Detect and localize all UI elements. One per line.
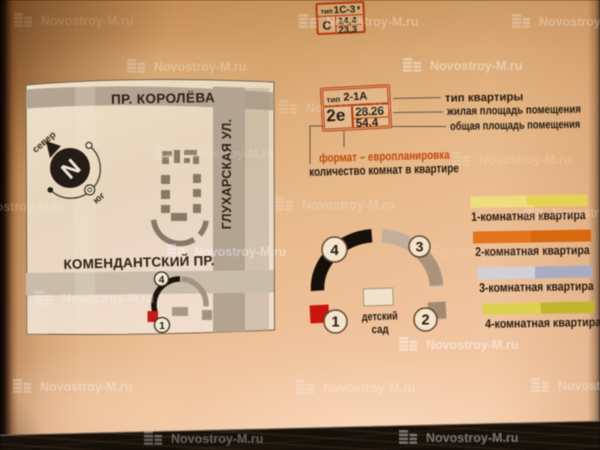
svg-text:2: 2 bbox=[421, 313, 429, 329]
svg-text:Novostroy-M.ru: Novostroy-M.ru bbox=[539, 15, 600, 29]
svg-text:Novostroy-M.ru: Novostroy-M.ru bbox=[558, 379, 600, 393]
svg-text:Novostroy-M.ru: Novostroy-M.ru bbox=[430, 59, 522, 73]
svg-text:Novostroy-M.ru: Novostroy-M.ru bbox=[302, 198, 394, 212]
svg-text:ГЛУХАРСКАЯ УЛ.: ГЛУХАРСКАЯ УЛ. bbox=[220, 119, 234, 230]
svg-text:4: 4 bbox=[330, 242, 339, 259]
svg-text:Novostroy-M.ru: Novostroy-M.ru bbox=[171, 432, 263, 446]
svg-text:Novostroy-M.ru: Novostroy-M.ru bbox=[194, 245, 286, 259]
svg-text:Novostroy-M.ru: Novostroy-M.ru bbox=[457, 246, 549, 260]
svg-text:Novostroy-M.ru: Novostroy-M.ru bbox=[323, 381, 415, 395]
svg-text:4: 4 bbox=[159, 274, 165, 286]
svg-text:1: 1 bbox=[331, 315, 339, 331]
svg-text:3: 3 bbox=[416, 239, 424, 255]
svg-text:Novostroy-M.ru: Novostroy-M.ru bbox=[306, 101, 398, 115]
svg-text:Novostroy-M.ru: Novostroy-M.ru bbox=[0, 200, 64, 214]
svg-text:сад: сад bbox=[371, 324, 389, 337]
svg-text:детский: детский bbox=[362, 310, 398, 323]
svg-text:Novostroy-M.ru: Novostroy-M.ru bbox=[41, 14, 133, 28]
svg-text:Novostroy-M.ru: Novostroy-M.ru bbox=[182, 147, 274, 161]
svg-text:1: 1 bbox=[159, 320, 165, 332]
svg-text:Novostroy-M.ru: Novostroy-M.ru bbox=[479, 153, 571, 167]
svg-text:Novostroy-M.ru: Novostroy-M.ru bbox=[426, 338, 518, 352]
svg-text:Novostroy-M.ru: Novostroy-M.ru bbox=[552, 206, 600, 220]
svg-text:Novostroy-M.ru: Novostroy-M.ru bbox=[62, 292, 154, 306]
svg-text:ПР. КОРОЛЁВА: ПР. КОРОЛЁВА bbox=[111, 90, 215, 107]
svg-text:Novostroy-M.ru: Novostroy-M.ru bbox=[40, 380, 132, 394]
svg-text:Novostroy-M.ru: Novostroy-M.ru bbox=[426, 431, 518, 445]
svg-text:Novostroy-M.ru: Novostroy-M.ru bbox=[326, 15, 418, 29]
svg-text:Novostroy-M.ru: Novostroy-M.ru bbox=[154, 60, 246, 74]
